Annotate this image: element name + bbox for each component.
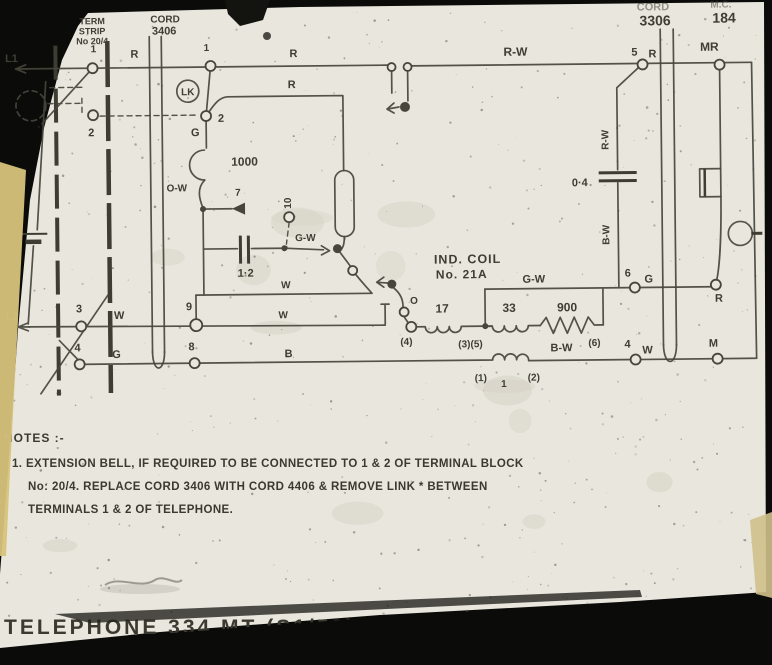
notes-heading: NOTES :- (4, 431, 65, 445)
terminal-4-label: 4 (74, 342, 81, 354)
notes-line: TERMINALS 1 & 2 OF TELEPHONE. (28, 504, 233, 516)
coil-terminal-6-label: (6) (588, 338, 600, 349)
terminal-2-label: 2 (218, 113, 224, 125)
capacitor-1-2-label: 1·2 (238, 268, 254, 280)
induction-coil-subtitle: No. 21A (436, 267, 488, 282)
terminal-9-label: 9 (186, 301, 192, 313)
wire-gw-label: G-W (522, 273, 545, 285)
contact-10-label: 10 (283, 197, 294, 209)
winding-33-label: 33 (502, 301, 516, 315)
resistor-900-label: 900 (557, 300, 577, 314)
coil-terminal-3-5-label: (3)(5) (458, 339, 483, 350)
wire-bw-label: B-W (550, 342, 573, 354)
diagram-canvas: TERM STRIP No 20/4 CORD 3406 CORD 3306 M… (0, 0, 772, 665)
wire-ow-label: O-W (166, 183, 187, 194)
lk-label: LK (181, 87, 195, 98)
wire-w-label: W (278, 310, 288, 321)
contact-7-label: 7 (235, 188, 241, 199)
photo-of-wiring-diagram: TERM STRIP No 20/4 CORD 3406 CORD 3306 M… (0, 0, 772, 665)
coil-terminal-4-label: (4) (400, 337, 412, 348)
term-strip-label: STRIP (79, 26, 106, 36)
wire-w-label: W (281, 280, 291, 291)
mr-label: MR (700, 40, 719, 54)
wire-rw-label: R-W (503, 45, 528, 59)
terminal-m-label: M (709, 338, 718, 350)
wire-gw-label: G-W (295, 233, 316, 244)
terminal-5-label: 5 (631, 46, 637, 58)
wire-o-label: O (410, 296, 418, 307)
wire-g-label: G (644, 273, 653, 285)
terminal-8-label: 8 (188, 341, 194, 353)
wire-w-label: W (642, 344, 653, 356)
terminal-1-label: 1 (204, 43, 210, 54)
wire-rw-label: R-W (600, 129, 611, 150)
wire-g-label: G (191, 127, 200, 139)
wire-w-label: W (114, 310, 125, 322)
notes-line: No: 20/4. REPLACE CORD 3406 WITH CORD 44… (28, 481, 488, 493)
wire-b-label: B (285, 348, 293, 360)
wire-r-label: R (648, 48, 656, 60)
coil-terminal-2-label: (2) (528, 373, 540, 384)
line-l1-label: L1 (5, 53, 18, 65)
cord-3306-label: 3306 (639, 12, 671, 28)
photo-blemish (263, 32, 271, 40)
coil-terminal-1-label: (1) (475, 373, 487, 384)
wire-r-label: R (130, 49, 138, 61)
cord-3406-label: CORD (150, 14, 180, 25)
winding-17-label: 17 (435, 301, 449, 315)
cord-3406-label: 3406 (152, 25, 177, 37)
wire-bw-label: B-W (601, 224, 612, 245)
wire-g-label: G (112, 349, 121, 361)
term-strip-label: TERM (79, 16, 105, 26)
wire-r-label: R (289, 48, 297, 60)
terminal-6-label: 6 (625, 268, 631, 280)
mc-label: 184 (712, 9, 736, 25)
terminal-2-label: 2 (88, 127, 94, 139)
induction-coil-title: IND. COIL (434, 252, 501, 267)
terminal-4-label: 4 (624, 339, 631, 351)
terminal-1-label: 1 (91, 44, 97, 55)
wire-r-label: R (715, 293, 723, 305)
capacitor-0-4-label: 0·4 (572, 177, 589, 189)
wire-r-label: R (288, 79, 296, 91)
notes-line: 1. EXTENSION BELL, IF REQUIRED TO BE CON… (12, 458, 524, 470)
terminal-3-label: 3 (76, 303, 82, 315)
winding-1-label: 1 (501, 379, 507, 390)
bell-1000-label: 1000 (231, 154, 258, 168)
